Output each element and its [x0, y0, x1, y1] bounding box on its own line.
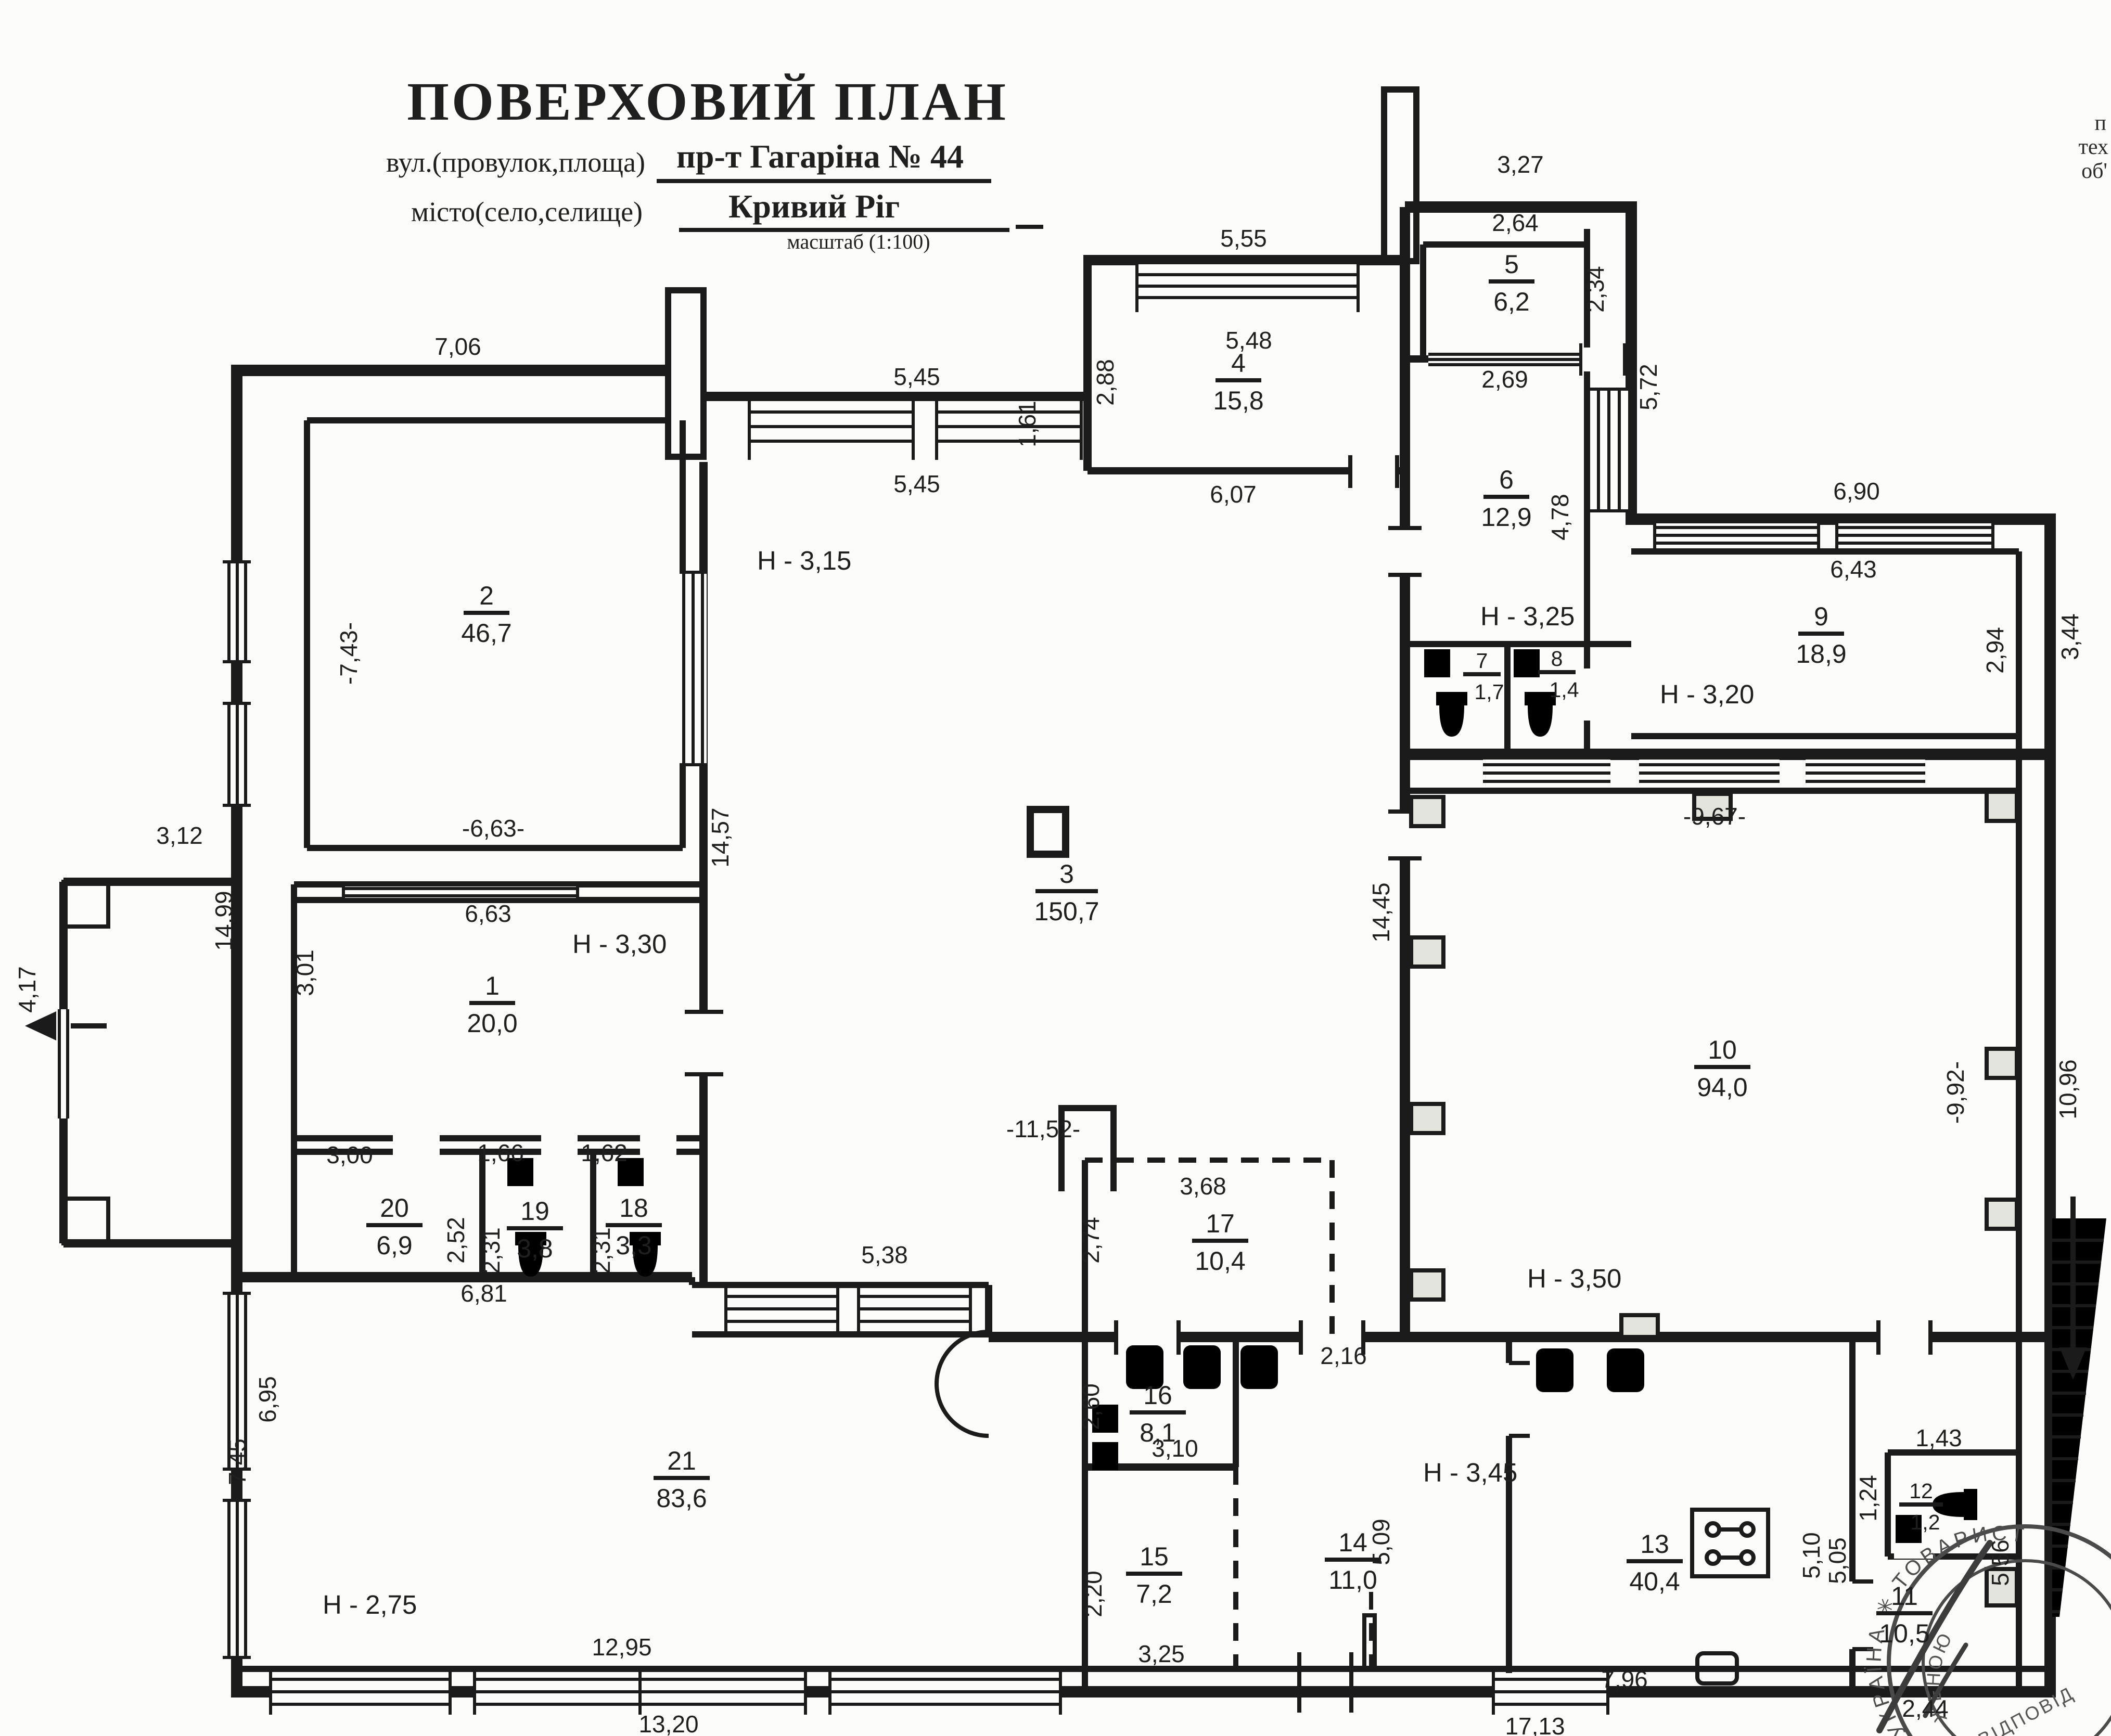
- dim: 2,16: [1320, 1342, 1367, 1369]
- dim: 2,34: [1582, 266, 1609, 313]
- height-room1: Н - 3,30: [572, 929, 667, 959]
- room-area: 3,3: [616, 1231, 652, 1260]
- dim: 4,78: [1546, 494, 1573, 541]
- dim: -9,67-: [1683, 803, 1746, 830]
- room-area: 11,0: [1328, 1565, 1377, 1594]
- room-number: 6: [1499, 465, 1514, 494]
- dim: 12,95: [592, 1634, 651, 1661]
- dim: 1,43: [1915, 1424, 1962, 1451]
- height-rooms7-8: Н - 3,25: [1480, 601, 1575, 631]
- city-label: місто(село,селище): [411, 196, 643, 227]
- dim: 2,31: [588, 1227, 615, 1274]
- dim: 3,44: [2056, 613, 2083, 660]
- page-title: ПОВЕРХОВИЙ ПЛАН: [407, 72, 1008, 132]
- dim: 7,45: [224, 1438, 251, 1485]
- dim: 14,57: [707, 807, 734, 867]
- dim: 2,44: [1902, 1695, 1949, 1722]
- corner-note-line2: тех: [2079, 135, 2108, 159]
- corner-note-line1: п: [2095, 111, 2106, 135]
- dim: 5,72: [1635, 364, 1662, 410]
- dim: -11,52-: [1006, 1115, 1080, 1142]
- dim: 1,24: [1854, 1475, 1882, 1522]
- room-area: 1,2: [1911, 1510, 1940, 1534]
- room-area: 3,8: [517, 1234, 553, 1263]
- urinal-icon: [1183, 1345, 1221, 1389]
- dim: 3,01: [291, 949, 318, 996]
- floor-plan-drawing: ПОВЕРХОВИЙ ПЛАН вул.(провулок,площа) пр-…: [0, 0, 2111, 1736]
- dim: 2,94: [1981, 627, 2008, 674]
- dim: -7,43-: [335, 622, 362, 685]
- dim: -6,63-: [462, 815, 524, 842]
- room-area: 6,2: [1493, 287, 1530, 316]
- dim: 1,61: [1014, 401, 1041, 447]
- dim: 6,43: [1830, 556, 1877, 583]
- street-value: пр-т Гагаріна № 44: [676, 138, 964, 175]
- room-area: 7,2: [1136, 1579, 1172, 1609]
- room-area: 1,4: [1550, 678, 1579, 702]
- room-area: 150,7: [1034, 897, 1099, 926]
- room-number: 10: [1708, 1035, 1737, 1064]
- room-number: 18: [619, 1193, 648, 1223]
- room-area: 94,0: [1697, 1073, 1747, 1102]
- room-area: 40,4: [1629, 1567, 1680, 1596]
- urinal-icon: [1536, 1348, 1573, 1392]
- city-value: Кривий Ріг: [728, 188, 900, 225]
- sink-icon: [1424, 649, 1450, 677]
- room-number: 16: [1143, 1381, 1172, 1410]
- dim: 2,60: [1077, 1383, 1104, 1430]
- scale-note: масштаб (1:100): [787, 230, 930, 253]
- dim: 2,20: [1080, 1571, 1107, 1617]
- height-room9: Н - 3,20: [1660, 679, 1754, 709]
- room-number: 2: [479, 581, 494, 610]
- dim: 7,96: [1601, 1666, 1648, 1693]
- room-number: 8: [1551, 647, 1563, 671]
- room-area: 12,9: [1481, 503, 1531, 532]
- room-area: 15,8: [1213, 386, 1263, 415]
- dim: 6,63: [465, 900, 511, 927]
- room-area: 6,9: [376, 1231, 413, 1260]
- dim: 3,27: [1497, 151, 1544, 178]
- dim: 3,00: [326, 1141, 373, 1168]
- dim: 10,96: [2054, 1059, 2081, 1119]
- dim: 7,06: [434, 333, 481, 360]
- dim: 14,99: [210, 891, 237, 950]
- dim: 5,48: [1225, 327, 1272, 354]
- dim: 5,56: [1987, 1539, 2014, 1586]
- dim: 2,52: [442, 1217, 469, 1264]
- room-number: 19: [520, 1197, 549, 1226]
- room-area: 46,7: [461, 619, 511, 648]
- dim: 2,88: [1092, 359, 1119, 406]
- room-area: 1,7: [1475, 680, 1504, 704]
- dim: 6,81: [460, 1280, 507, 1307]
- room-number: 5: [1504, 250, 1519, 279]
- room-area: 20,0: [467, 1009, 517, 1038]
- room-area: 10,5: [1879, 1619, 1929, 1648]
- sink-icon: [1092, 1442, 1118, 1470]
- dim: 5,09: [1367, 1519, 1394, 1565]
- dim: 2,31: [478, 1227, 505, 1274]
- dim: 5,55: [1220, 225, 1267, 252]
- room-number: 11: [1891, 1581, 1918, 1611]
- dim: 6,95: [254, 1376, 281, 1423]
- street-label: вул.(провулок,площа): [386, 147, 645, 178]
- dim: 3,12: [156, 822, 203, 849]
- room-number: 3: [1059, 859, 1074, 889]
- height-room14: Н - 3,45: [1423, 1458, 1517, 1487]
- room-number: 20: [380, 1193, 409, 1223]
- dim: 2,69: [1481, 366, 1528, 393]
- dim: 6,90: [1833, 478, 1880, 505]
- dim: 14,45: [1367, 882, 1394, 942]
- room-area: 10,4: [1195, 1246, 1245, 1276]
- dim: 5,45: [893, 470, 940, 497]
- dim: 5,38: [861, 1241, 908, 1268]
- dim: 2,64: [1492, 209, 1539, 236]
- room-number: 13: [1640, 1529, 1669, 1559]
- room-number: 21: [667, 1446, 696, 1475]
- room-area: 18,9: [1796, 639, 1846, 668]
- room-number: 12: [1909, 1479, 1933, 1503]
- dim: 5,05: [1824, 1537, 1851, 1584]
- dim: 17,13: [1505, 1713, 1565, 1736]
- room-number: 14: [1338, 1528, 1367, 1557]
- dim: 13,20: [638, 1711, 698, 1736]
- height-room3: Н - 3,15: [757, 546, 851, 575]
- dim: 5,45: [893, 363, 940, 390]
- dim: 2,74: [1077, 1217, 1104, 1264]
- urinal-icon: [1240, 1345, 1278, 1389]
- floor-plan-sheet: ПОВЕРХОВИЙ ПЛАН вул.(провулок,площа) пр-…: [0, 0, 2111, 1736]
- dim: 4,17: [14, 966, 41, 1013]
- height-room21: Н - 2,75: [323, 1590, 417, 1619]
- room-number: 15: [1140, 1542, 1169, 1571]
- dim: 6,07: [1210, 481, 1257, 508]
- paper-background: [0, 0, 2111, 1736]
- dim: 1,62: [581, 1139, 628, 1166]
- room-number: 9: [1814, 602, 1828, 631]
- dim: 3,68: [1180, 1173, 1226, 1200]
- room-number: 17: [1206, 1209, 1235, 1238]
- urinal-icon: [1607, 1348, 1644, 1392]
- dim: 5,10: [1798, 1532, 1825, 1579]
- room-number: 7: [1476, 649, 1488, 673]
- corner-note-line3: об': [2081, 159, 2107, 183]
- room-area: 83,6: [656, 1484, 707, 1513]
- dim: 3,10: [1152, 1435, 1198, 1462]
- sink-icon: [1514, 649, 1540, 677]
- dim: -9,92-: [1942, 1061, 1969, 1124]
- room-number: 1: [485, 971, 500, 1000]
- dim: 3,25: [1138, 1640, 1185, 1667]
- height-room10: Н - 3,50: [1527, 1264, 1621, 1293]
- dim: 1,66: [477, 1139, 524, 1166]
